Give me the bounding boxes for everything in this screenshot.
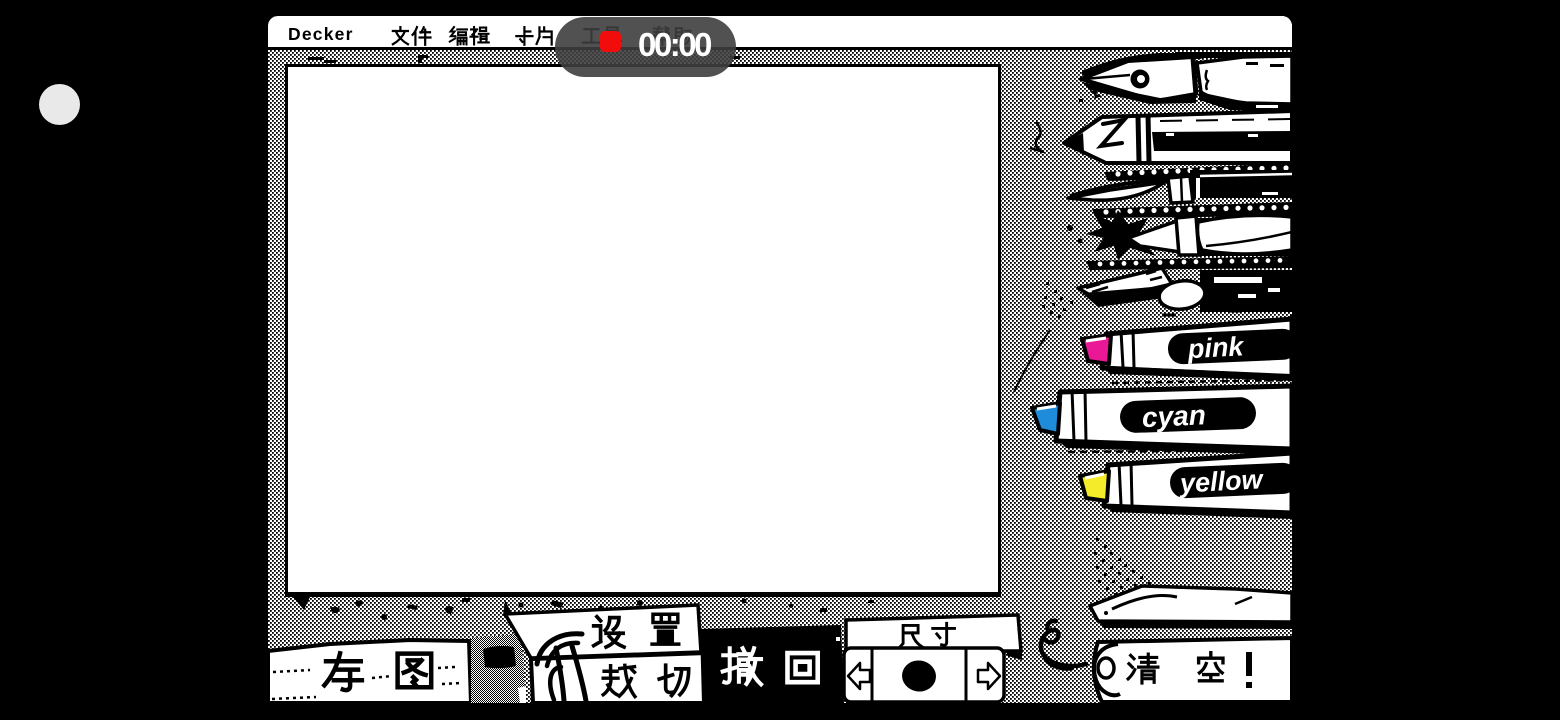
svg-text:cyan: cyan <box>1141 399 1206 433</box>
svg-text:pink: pink <box>1186 331 1246 364</box>
svg-text:yellow: yellow <box>1177 464 1265 498</box>
